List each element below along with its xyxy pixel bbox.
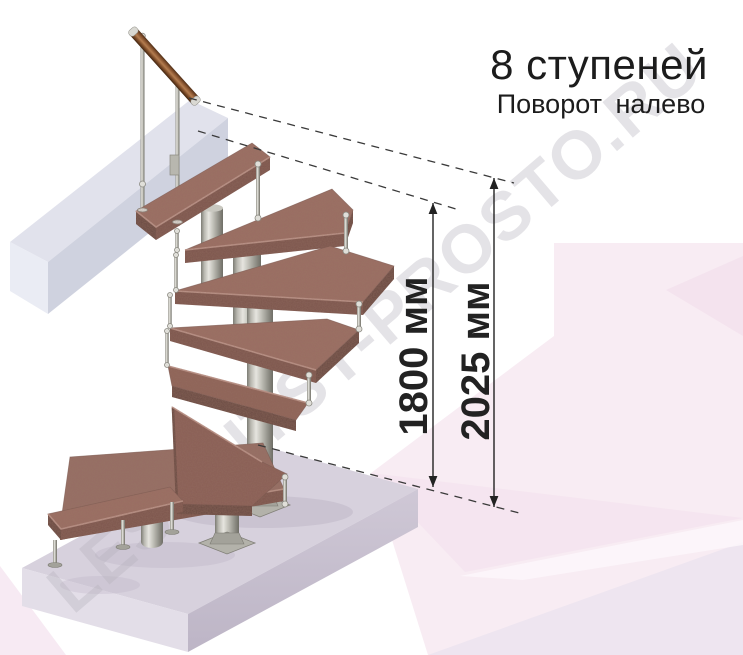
floor-rod [121,520,125,547]
page-title: 8 ступеней [490,41,708,88]
staircase-product-image: LESTNITSY-PROSTO.RU [0,0,743,655]
support-rod [307,374,311,404]
column-flange [210,533,244,544]
tip-rod [165,330,169,367]
support-rod [256,163,260,219]
tip-rod [168,294,172,327]
staircase-illustration: LESTNITSY-PROSTO.RU [0,0,743,655]
floor-rod [170,502,174,532]
dimension-label-1800: 1800 мм [392,276,436,435]
support-rod [344,214,348,252]
handrail-bracket [170,155,179,175]
dimension-label-2025: 2025 мм [454,281,498,440]
handrail-post-joint [140,181,146,187]
page-subtitle: Поворот налево [497,89,706,119]
tip-rod [174,254,178,291]
floor-rod [53,540,57,565]
